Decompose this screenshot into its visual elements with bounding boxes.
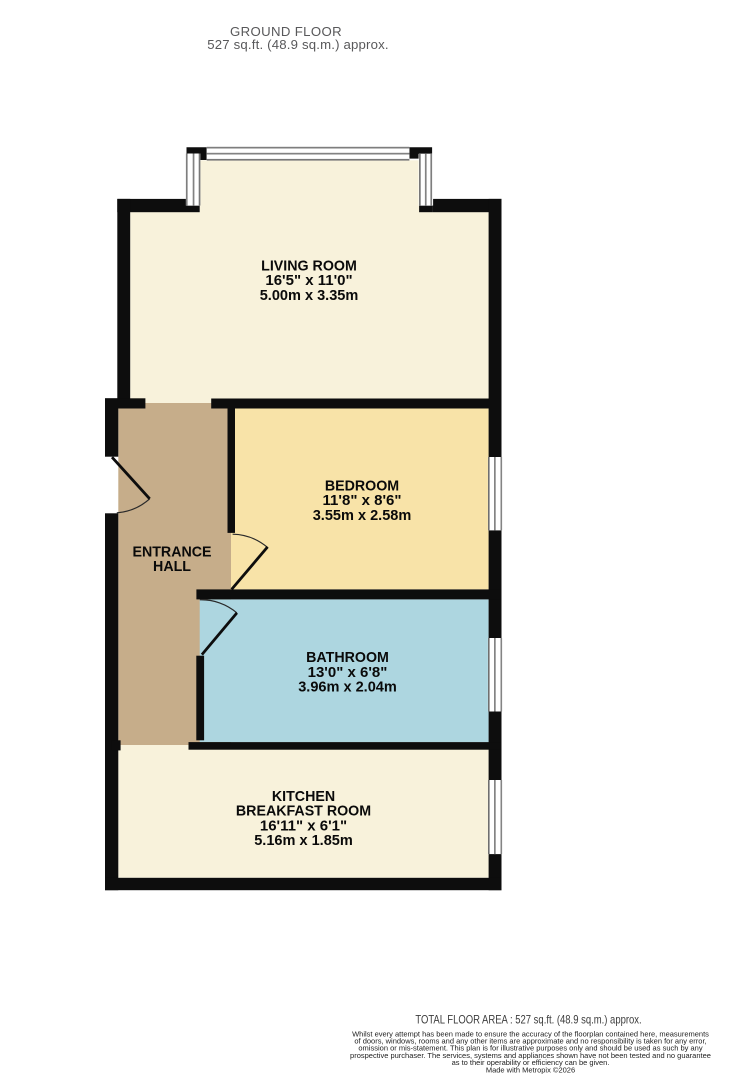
svg-text:Made with Metropix ©2026: Made with Metropix ©2026 xyxy=(486,1065,575,1074)
svg-text:3.96m x 2.04m: 3.96m x 2.04m xyxy=(298,679,397,695)
svg-text:11'8" x 8'6": 11'8" x 8'6" xyxy=(323,492,402,509)
svg-text:16'5" x 11'0": 16'5" x 11'0" xyxy=(265,272,352,289)
svg-text:3.55m x 2.58m: 3.55m x 2.58m xyxy=(313,508,412,524)
svg-text:HALL: HALL xyxy=(153,559,191,575)
svg-text:5.00m x 3.35m: 5.00m x 3.35m xyxy=(260,288,359,304)
svg-text:13'0" x 6'8": 13'0" x 6'8" xyxy=(308,664,388,681)
svg-text:TOTAL FLOOR AREA : 527 sq.ft.: TOTAL FLOOR AREA : 527 sq.ft. (48.9 sq.m… xyxy=(415,1013,641,1026)
svg-text:5.16m x 1.85m: 5.16m x 1.85m xyxy=(254,833,353,849)
svg-text:527 sq.ft. (48.9 sq.m.) approx: 527 sq.ft. (48.9 sq.m.) approx. xyxy=(207,37,389,52)
svg-text:16'11" x 6'1": 16'11" x 6'1" xyxy=(260,817,347,834)
